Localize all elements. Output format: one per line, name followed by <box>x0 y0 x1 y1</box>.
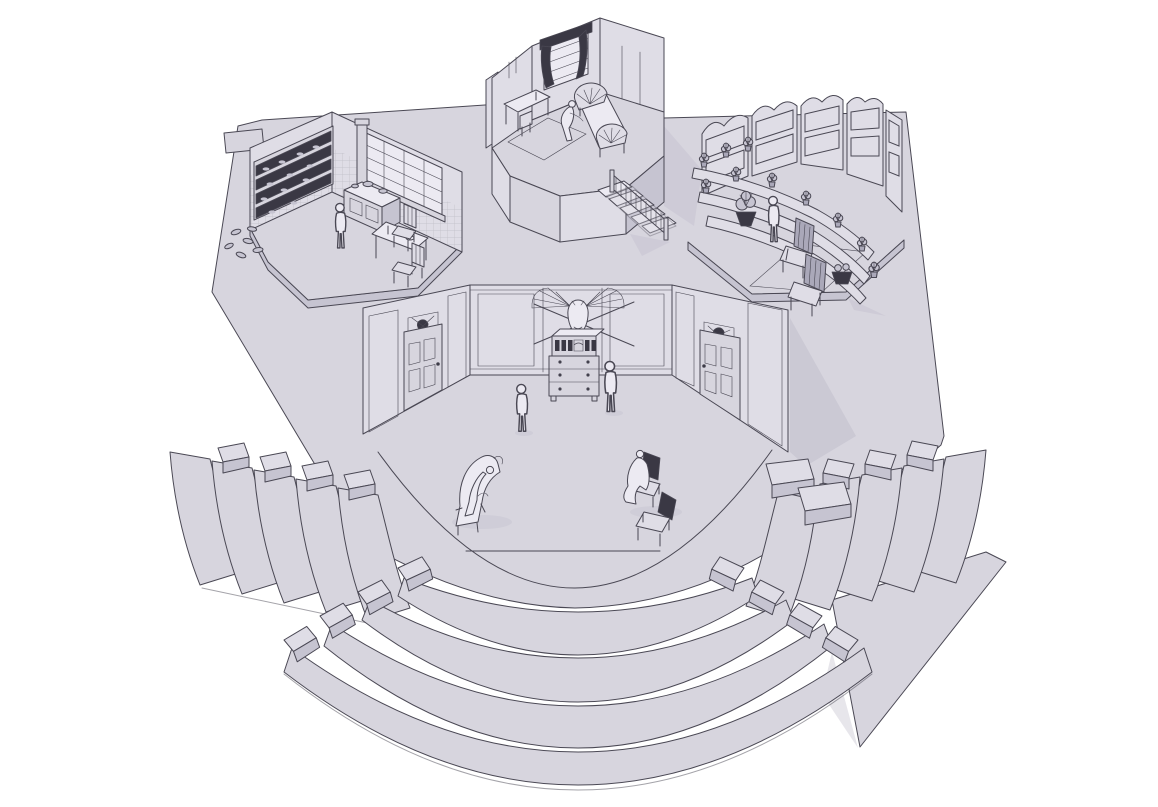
door-knob <box>703 365 706 368</box>
bedroom-set <box>486 18 676 242</box>
stove-kettle <box>352 184 359 188</box>
theater-set-render <box>0 0 1158 807</box>
door-knob <box>437 363 440 366</box>
bureau <box>549 329 604 401</box>
stove-pot <box>363 181 373 186</box>
render-canvas <box>0 0 1158 807</box>
stove-pot <box>379 189 387 193</box>
